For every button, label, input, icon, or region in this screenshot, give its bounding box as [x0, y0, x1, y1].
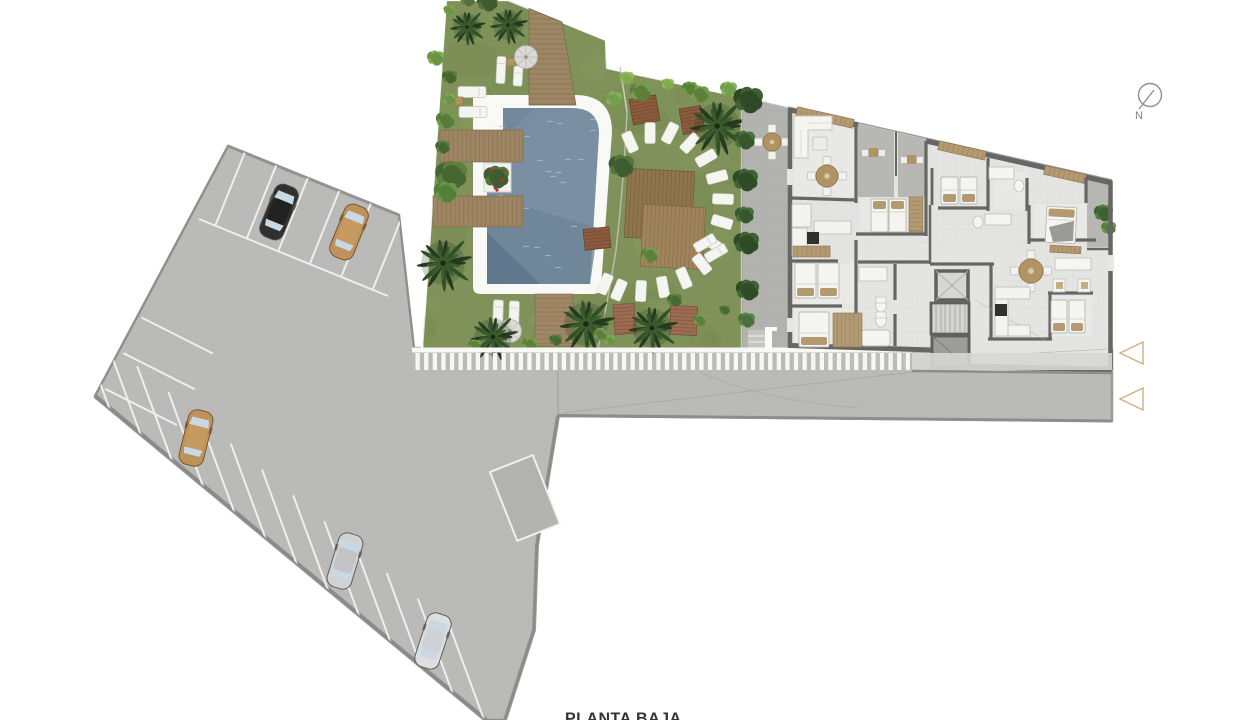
svg-text:PLANTA BAJA: PLANTA BAJA [565, 711, 682, 720]
svg-text:N: N [1135, 110, 1143, 122]
